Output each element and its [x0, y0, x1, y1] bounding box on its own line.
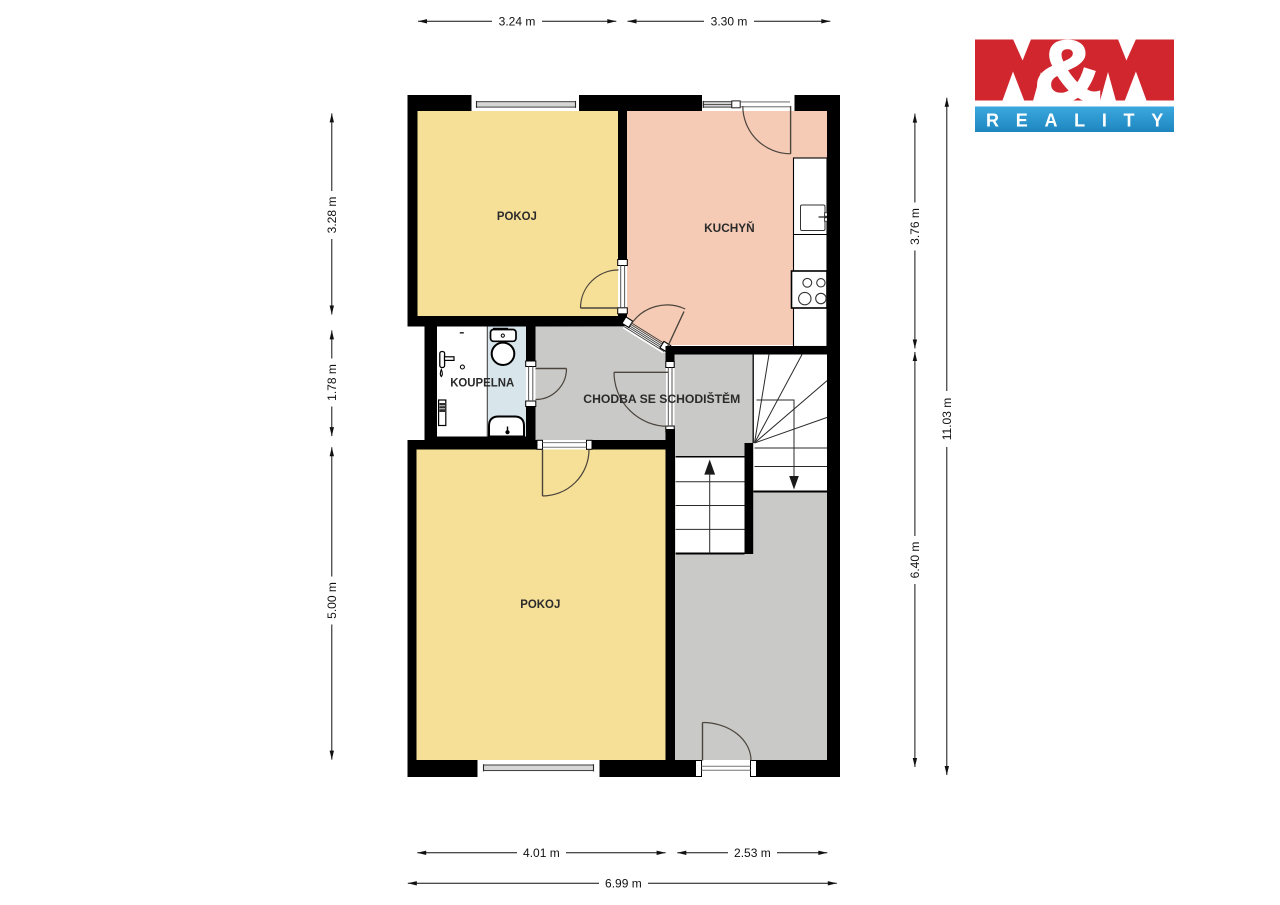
- svg-text:6.40 m: 6.40 m: [908, 542, 922, 579]
- svg-text:CHODBA SE SCHODIŠTĚM: CHODBA SE SCHODIŠTĚM: [583, 391, 740, 406]
- svg-text:REALITY: REALITY: [986, 111, 1180, 131]
- svg-text:4.01 m: 4.01 m: [523, 846, 560, 860]
- svg-text:2.53 m: 2.53 m: [734, 846, 771, 860]
- svg-text:3.30 m: 3.30 m: [711, 15, 748, 29]
- svg-text:11.03 m: 11.03 m: [940, 398, 954, 440]
- svg-text:KOUPELNA: KOUPELNA: [450, 375, 514, 389]
- svg-text:3.76 m: 3.76 m: [908, 208, 922, 245]
- svg-text:&: &: [1034, 23, 1102, 120]
- svg-text:1.78 m: 1.78 m: [325, 364, 339, 401]
- svg-text:KUCHYŇ: KUCHYŇ: [704, 220, 755, 235]
- svg-text:5.00 m: 5.00 m: [325, 582, 339, 619]
- svg-text:6.99 m: 6.99 m: [605, 877, 642, 891]
- svg-text:3.28 m: 3.28 m: [325, 197, 339, 234]
- svg-text:3.24 m: 3.24 m: [499, 15, 536, 29]
- svg-text:POKOJ: POKOJ: [497, 209, 537, 223]
- svg-text:POKOJ: POKOJ: [520, 597, 560, 611]
